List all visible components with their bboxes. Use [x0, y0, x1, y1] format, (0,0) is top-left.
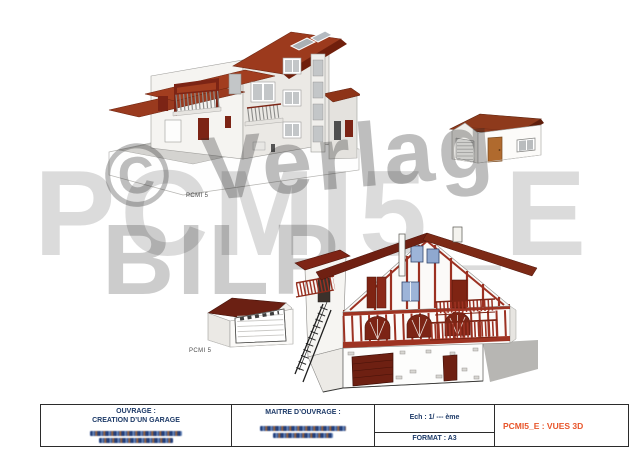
garage-view-label: PCMI 5: [189, 348, 211, 354]
entry-door: [488, 137, 502, 162]
redacted-name-line: [273, 433, 333, 438]
garage-3d-view: [443, 100, 548, 172]
ouvrage-value: CREATION D’UN GARAGE: [92, 417, 180, 426]
redacted-address-line: [90, 431, 182, 436]
sheet-title: PCMI5_E : VUES 3D: [503, 421, 583, 431]
main-house-view-label: PCMI 5: [186, 193, 208, 199]
ground-shadow: [483, 340, 538, 382]
ouvrage-label: OUVRAGE :: [116, 408, 156, 417]
main-house-3d-view: [95, 18, 360, 210]
title-block-sheet-cell: PCMI5_E : VUES 3D: [494, 405, 628, 446]
gable: [343, 237, 510, 315]
title-block: OUVRAGE : CREATION D’UN GARAGE MAITRE D’…: [40, 404, 629, 447]
title-block-maitre-cell: MAITRE D’OUVRAGE :: [231, 405, 374, 446]
scale-value: Ech : 1/ --- ème: [410, 414, 460, 423]
plan-sheet: PCMI5_E BILP © Verlag PCMI 5 PCMI 5 OUVR…: [0, 0, 640, 453]
garage-door: [456, 138, 474, 162]
title-block-ouvrage-cell: OUVRAGE : CREATION D’UN GARAGE: [41, 405, 231, 446]
maitre-ouvrage-label: MAITRE D’OUVRAGE :: [265, 409, 340, 418]
window: [517, 138, 535, 152]
format-value: FORMAT : A3: [412, 435, 456, 444]
stone-base: [343, 343, 483, 388]
redacted-name-line: [260, 426, 346, 431]
redacted-address-line: [99, 438, 173, 443]
garage-front-view: [200, 294, 300, 354]
title-block-scale-cell: Ech : 1/ --- ème FORMAT : A3: [374, 405, 494, 446]
basque-house-3d-view: [290, 224, 540, 402]
